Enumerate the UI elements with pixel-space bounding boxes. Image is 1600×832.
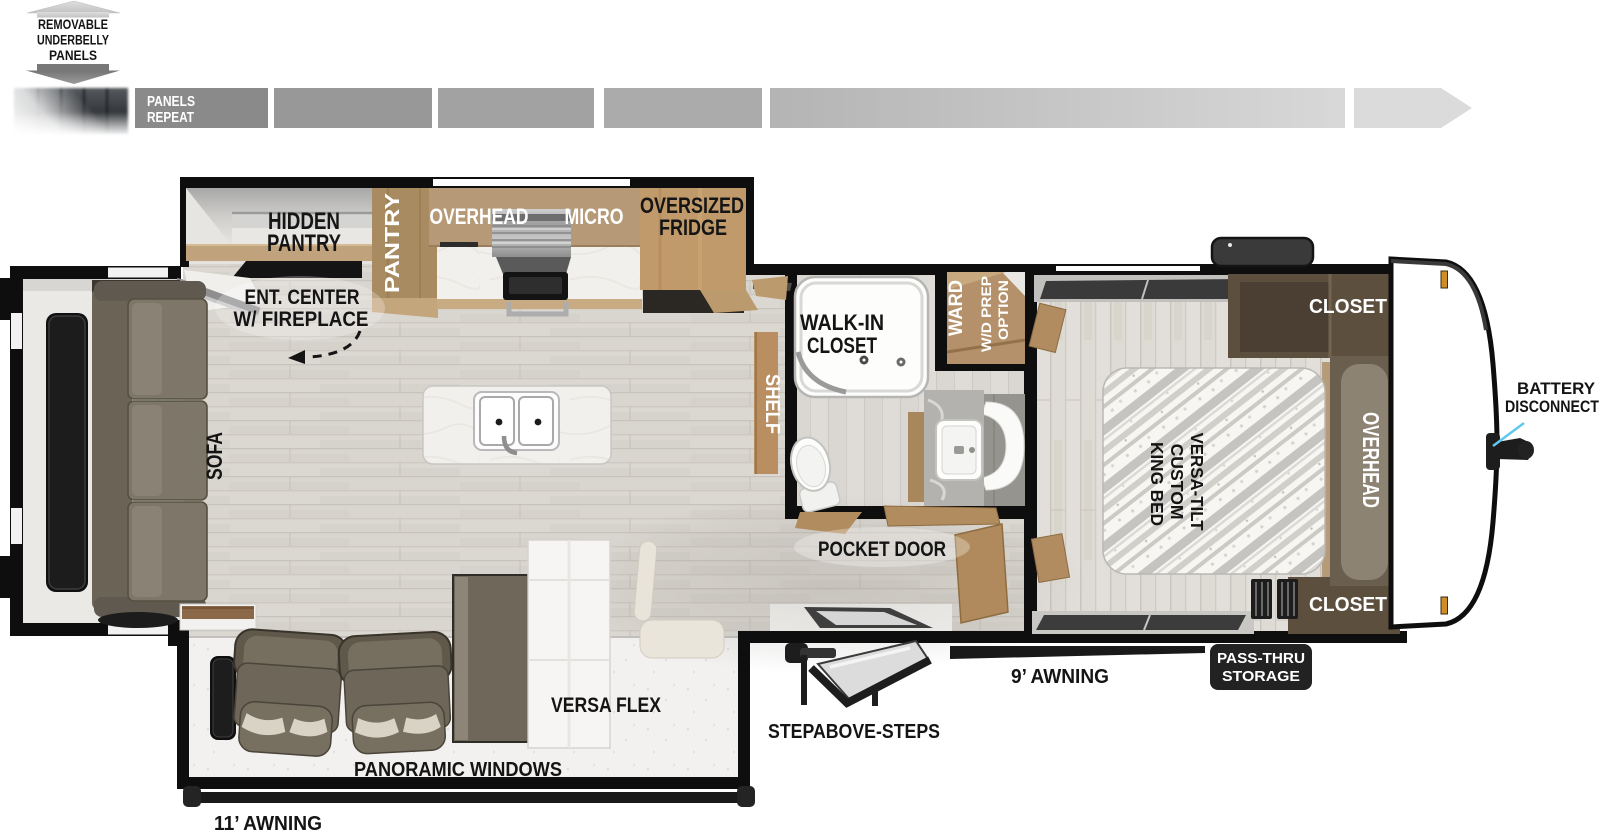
svg-text:STORAGE: STORAGE bbox=[1222, 668, 1300, 685]
svg-text:FRIDGE: FRIDGE bbox=[659, 215, 727, 240]
svg-text:PANORAMIC WINDOWS: PANORAMIC WINDOWS bbox=[354, 759, 562, 781]
svg-text:CLOSET: CLOSET bbox=[1309, 594, 1387, 616]
svg-text:PANELS: PANELS bbox=[147, 93, 195, 110]
svg-text:W/ FIREPLACE: W/ FIREPLACE bbox=[234, 308, 369, 331]
svg-text:9’ AWNING: 9’ AWNING bbox=[1011, 666, 1109, 688]
svg-text:ENT. CENTER: ENT. CENTER bbox=[245, 286, 360, 309]
svg-text:MICRO: MICRO bbox=[565, 204, 624, 229]
svg-text:CLOSET: CLOSET bbox=[1309, 296, 1387, 318]
svg-text:WARD: WARD bbox=[946, 280, 967, 336]
svg-text:VERSA-TILT CUSTOM KING BED: VERSA-TILT CUSTOM KING BED bbox=[1147, 433, 1207, 536]
svg-text:STEPABOVE-STEPS: STEPABOVE-STEPS bbox=[768, 721, 940, 743]
svg-text:CLOSET: CLOSET bbox=[807, 333, 877, 358]
svg-text:VERSA FLEX: VERSA FLEX bbox=[551, 694, 661, 717]
svg-text:OPTION: OPTION bbox=[996, 280, 1011, 340]
svg-text:PANELS: PANELS bbox=[49, 48, 97, 63]
svg-text:PASS-THRU: PASS-THRU bbox=[1217, 650, 1305, 667]
svg-text:WALK-IN: WALK-IN bbox=[800, 310, 884, 335]
svg-text:11’ AWNING: 11’ AWNING bbox=[214, 813, 322, 832]
svg-text:BATTERY: BATTERY bbox=[1517, 379, 1596, 398]
svg-text:REMOVABLE: REMOVABLE bbox=[38, 17, 108, 32]
svg-text:REPEAT: REPEAT bbox=[147, 109, 194, 126]
svg-text:PANTRY: PANTRY bbox=[382, 192, 404, 293]
svg-text:SHELF: SHELF bbox=[761, 374, 783, 434]
svg-text:UNDERBELLY: UNDERBELLY bbox=[37, 33, 109, 48]
svg-text:PANTRY: PANTRY bbox=[267, 230, 341, 257]
svg-text:DISCONNECT: DISCONNECT bbox=[1505, 397, 1600, 416]
svg-text:POCKET DOOR: POCKET DOOR bbox=[818, 538, 946, 561]
svg-text:SOFA: SOFA bbox=[202, 432, 227, 480]
svg-text:OVERHEAD: OVERHEAD bbox=[430, 204, 529, 229]
svg-text:W/D PREP: W/D PREP bbox=[979, 276, 994, 352]
svg-text:OVERHEAD: OVERHEAD bbox=[1358, 412, 1384, 508]
